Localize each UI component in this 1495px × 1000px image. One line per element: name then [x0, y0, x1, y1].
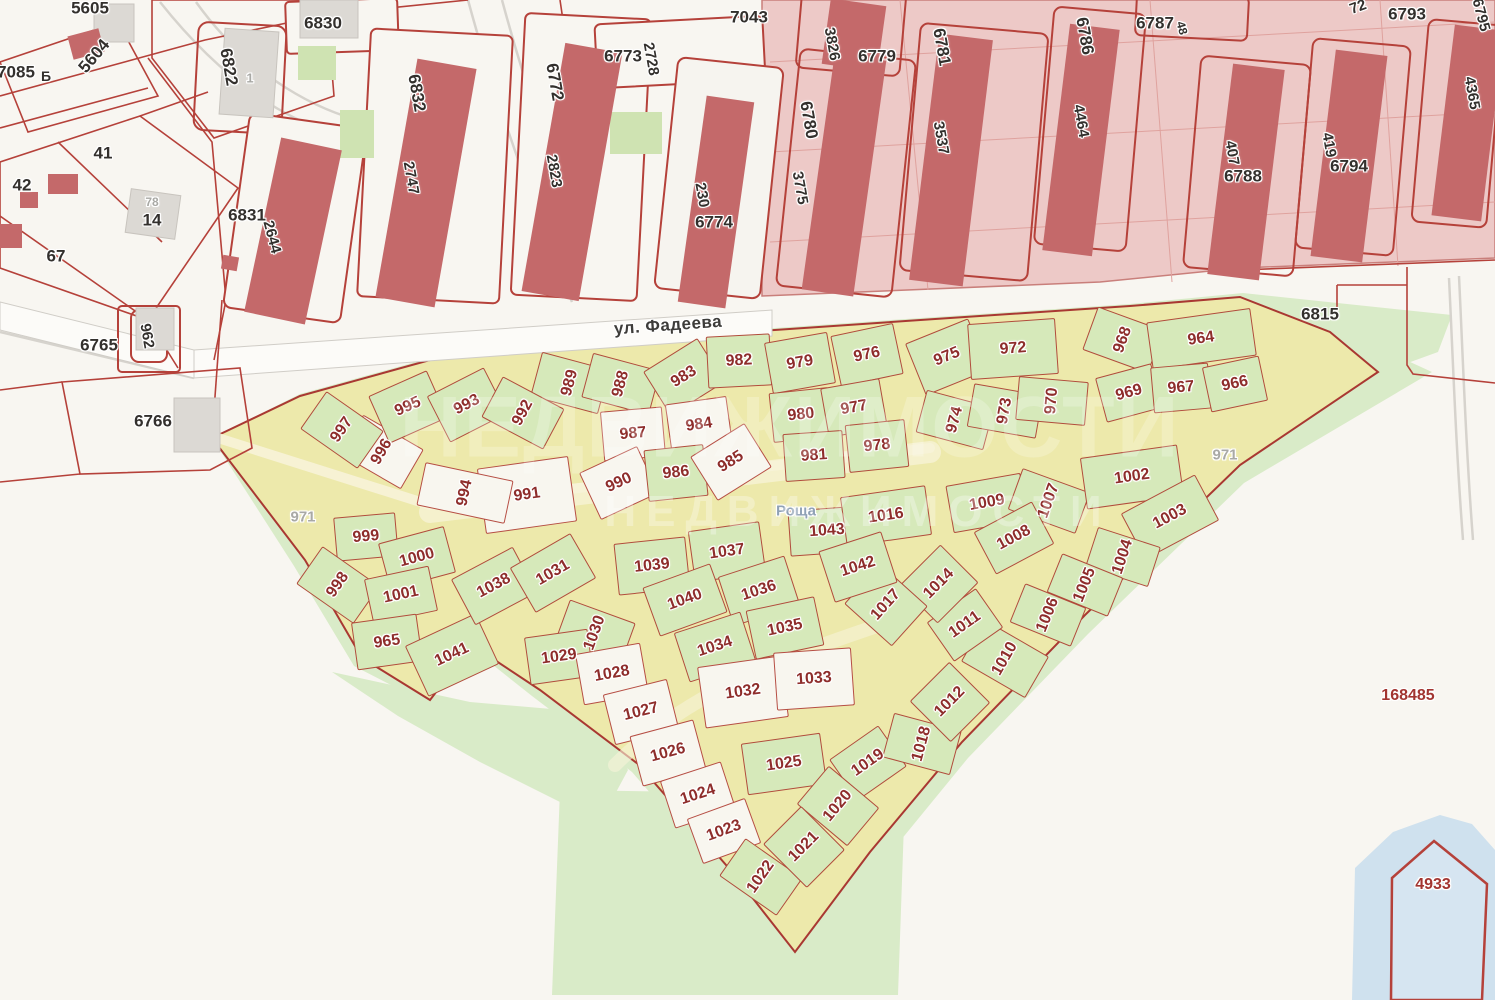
block-label-6781: 6781: [930, 27, 953, 67]
plot-label-990: 990: [604, 470, 635, 496]
plot-label-968: 968: [1111, 325, 1135, 356]
plot-label-988: 988: [610, 369, 632, 399]
plot-label-1038: 1038: [475, 571, 514, 602]
block-label-3826: 3826: [822, 26, 843, 61]
plot-label-1041: 1041: [432, 640, 471, 670]
plot-label-1009: 1009: [968, 492, 1006, 514]
plot-label-979: 979: [785, 353, 814, 373]
muted-label-971: 971: [290, 510, 315, 525]
plot-label-982: 982: [725, 352, 753, 369]
plot-label-1005: 1005: [1071, 566, 1099, 605]
plot-label-1030: 1030: [581, 614, 608, 653]
block-label-72: 72: [1348, 0, 1369, 17]
block-label-7085: 7085: [0, 64, 35, 81]
block-label-14: 14: [143, 212, 162, 229]
plot-label-1003: 1003: [1151, 502, 1190, 533]
plot-label-1020: 1020: [820, 787, 855, 825]
plot-label-1021: 1021: [786, 829, 822, 865]
plot-label-972: 972: [999, 340, 1027, 358]
plot-label-1028: 1028: [593, 663, 631, 685]
plot-label-967: 967: [1167, 379, 1195, 397]
plot-label-1024: 1024: [679, 782, 718, 808]
block-label-419: 419: [1319, 131, 1338, 158]
plot-label-1031: 1031: [534, 557, 573, 589]
block-label-3775: 3775: [790, 170, 811, 205]
reference-label-4933: 4933: [1415, 877, 1451, 893]
block-label-6788: 6788: [1224, 168, 1262, 185]
plot-label-1042: 1042: [839, 554, 878, 580]
muted-label-971: 971: [1212, 448, 1237, 463]
reference-label-168485: 168485: [1381, 688, 1434, 704]
block-label-4365: 4365: [1462, 75, 1483, 110]
plot-label-992: 992: [510, 397, 537, 428]
plot-label-1026: 1026: [649, 741, 688, 766]
plot-label-987: 987: [619, 425, 647, 443]
plot-label-1027: 1027: [622, 700, 660, 724]
block-label-6795: 6795: [1469, 0, 1492, 33]
map-labels-layer: 560556047085Б414278146768221683068312644…: [0, 0, 1495, 1000]
plot-label-1025: 1025: [765, 754, 802, 775]
plot-label-1036: 1036: [740, 578, 779, 604]
block-label-2728: 2728: [641, 41, 662, 76]
block-label-6779: 6779: [858, 48, 896, 65]
plot-label-1029: 1029: [540, 647, 577, 668]
plot-label-1022: 1022: [744, 858, 778, 896]
plot-label-989: 989: [559, 368, 581, 398]
plot-label-1006: 1006: [1034, 596, 1062, 635]
plot-label-980: 980: [787, 406, 815, 425]
plot-label-1004: 1004: [1110, 538, 1136, 577]
block-label-962: 962: [137, 322, 156, 349]
block-label-2747: 2747: [401, 160, 422, 195]
plot-label-1007: 1007: [1035, 482, 1062, 521]
plot-label-995: 995: [393, 394, 424, 419]
plot-label-1034: 1034: [696, 634, 735, 660]
block-label-6765: 6765: [80, 337, 118, 354]
plot-label-970: 970: [1043, 387, 1061, 415]
block-label-6772: 6772: [543, 62, 566, 102]
plot-label-974: 974: [944, 405, 966, 435]
block-label-6787: 6787: [1136, 15, 1174, 32]
block-label-42: 42: [13, 177, 32, 194]
plot-label-976: 976: [852, 344, 881, 365]
plot-label-1040: 1040: [666, 586, 705, 613]
plot-label-993: 993: [451, 392, 482, 418]
plot-label-1019: 1019: [849, 746, 887, 780]
block-label-6773: 6773: [604, 48, 642, 65]
plot-label-1008: 1008: [995, 523, 1034, 554]
plot-label-1032: 1032: [724, 682, 761, 703]
forest-label-Роща: Роща: [776, 504, 816, 519]
block-label-6830: 6830: [304, 15, 342, 32]
plot-label-996: 996: [368, 436, 395, 467]
block-label-5604: 5604: [75, 36, 112, 76]
street-label-ул.-Фадеева: ул. Фадеева: [613, 313, 722, 338]
block-label-6815: 6815: [1301, 306, 1339, 323]
plot-label-966: 966: [1220, 373, 1249, 394]
plot-label-1039: 1039: [633, 556, 670, 576]
block-label-6822: 6822: [217, 47, 240, 87]
plot-label-999: 999: [352, 528, 380, 546]
plot-label-1016: 1016: [867, 506, 904, 527]
block-label-6831: 6831: [228, 207, 266, 224]
plot-label-1011: 1011: [946, 608, 984, 641]
plot-label-1012: 1012: [932, 684, 968, 720]
muted-label-78: 78: [145, 196, 158, 208]
block-label-3537: 3537: [931, 120, 952, 155]
plot-label-1018: 1018: [910, 725, 935, 764]
plot-label-981: 981: [800, 447, 828, 465]
plot-label-998: 998: [324, 569, 352, 600]
plot-label-1033: 1033: [796, 670, 833, 688]
plot-label-964: 964: [1187, 329, 1216, 349]
plot-label-978: 978: [863, 437, 891, 456]
cadastral-map[interactable]: 560556047085Б414278146768221683068312644…: [0, 0, 1495, 1000]
plot-label-994: 994: [454, 478, 475, 507]
plot-label-1001: 1001: [382, 583, 420, 606]
plot-label-969: 969: [1114, 382, 1144, 404]
block-label-48: 48: [1174, 20, 1189, 36]
plot-label-977: 977: [839, 398, 868, 418]
block-label-6774: 6774: [695, 214, 733, 231]
block-label-Б: Б: [41, 69, 51, 83]
block-label-2644: 2644: [260, 219, 283, 255]
plot-label-1017: 1017: [868, 586, 904, 623]
plot-label-1043: 1043: [809, 522, 846, 540]
plot-label-991: 991: [513, 485, 542, 505]
block-label-230: 230: [692, 181, 711, 208]
plot-label-983: 983: [668, 363, 699, 391]
plot-label-973: 973: [995, 396, 1015, 425]
block-label-6793: 6793: [1388, 6, 1426, 23]
plot-label-1002: 1002: [1113, 467, 1150, 488]
block-label-2823: 2823: [544, 153, 565, 188]
block-label-6786: 6786: [1073, 16, 1096, 56]
block-label-4464: 4464: [1071, 103, 1092, 138]
block-label-7043: 7043: [730, 9, 768, 26]
plot-label-1035: 1035: [766, 616, 804, 639]
plot-label-984: 984: [685, 415, 714, 435]
block-label-6780: 6780: [797, 100, 820, 140]
plot-label-1014: 1014: [921, 566, 957, 602]
block-label-6766: 6766: [134, 413, 172, 430]
plot-label-986: 986: [662, 464, 690, 483]
plot-label-1000: 1000: [398, 546, 437, 571]
plot-label-1023: 1023: [705, 817, 744, 844]
block-label-6794: 6794: [1330, 158, 1368, 175]
block-label-5605: 5605: [71, 0, 109, 17]
plot-label-975: 975: [932, 345, 963, 370]
plot-label-965: 965: [373, 632, 402, 652]
block-label-67: 67: [47, 248, 66, 265]
muted-label-1: 1: [246, 72, 253, 85]
plot-label-1010: 1010: [989, 640, 1021, 679]
block-label-41: 41: [94, 145, 113, 162]
plot-label-985: 985: [715, 448, 746, 476]
plot-label-997: 997: [328, 414, 356, 445]
block-label-6832: 6832: [405, 73, 428, 113]
plot-label-1037: 1037: [708, 542, 745, 563]
block-label-407: 407: [1222, 139, 1241, 166]
